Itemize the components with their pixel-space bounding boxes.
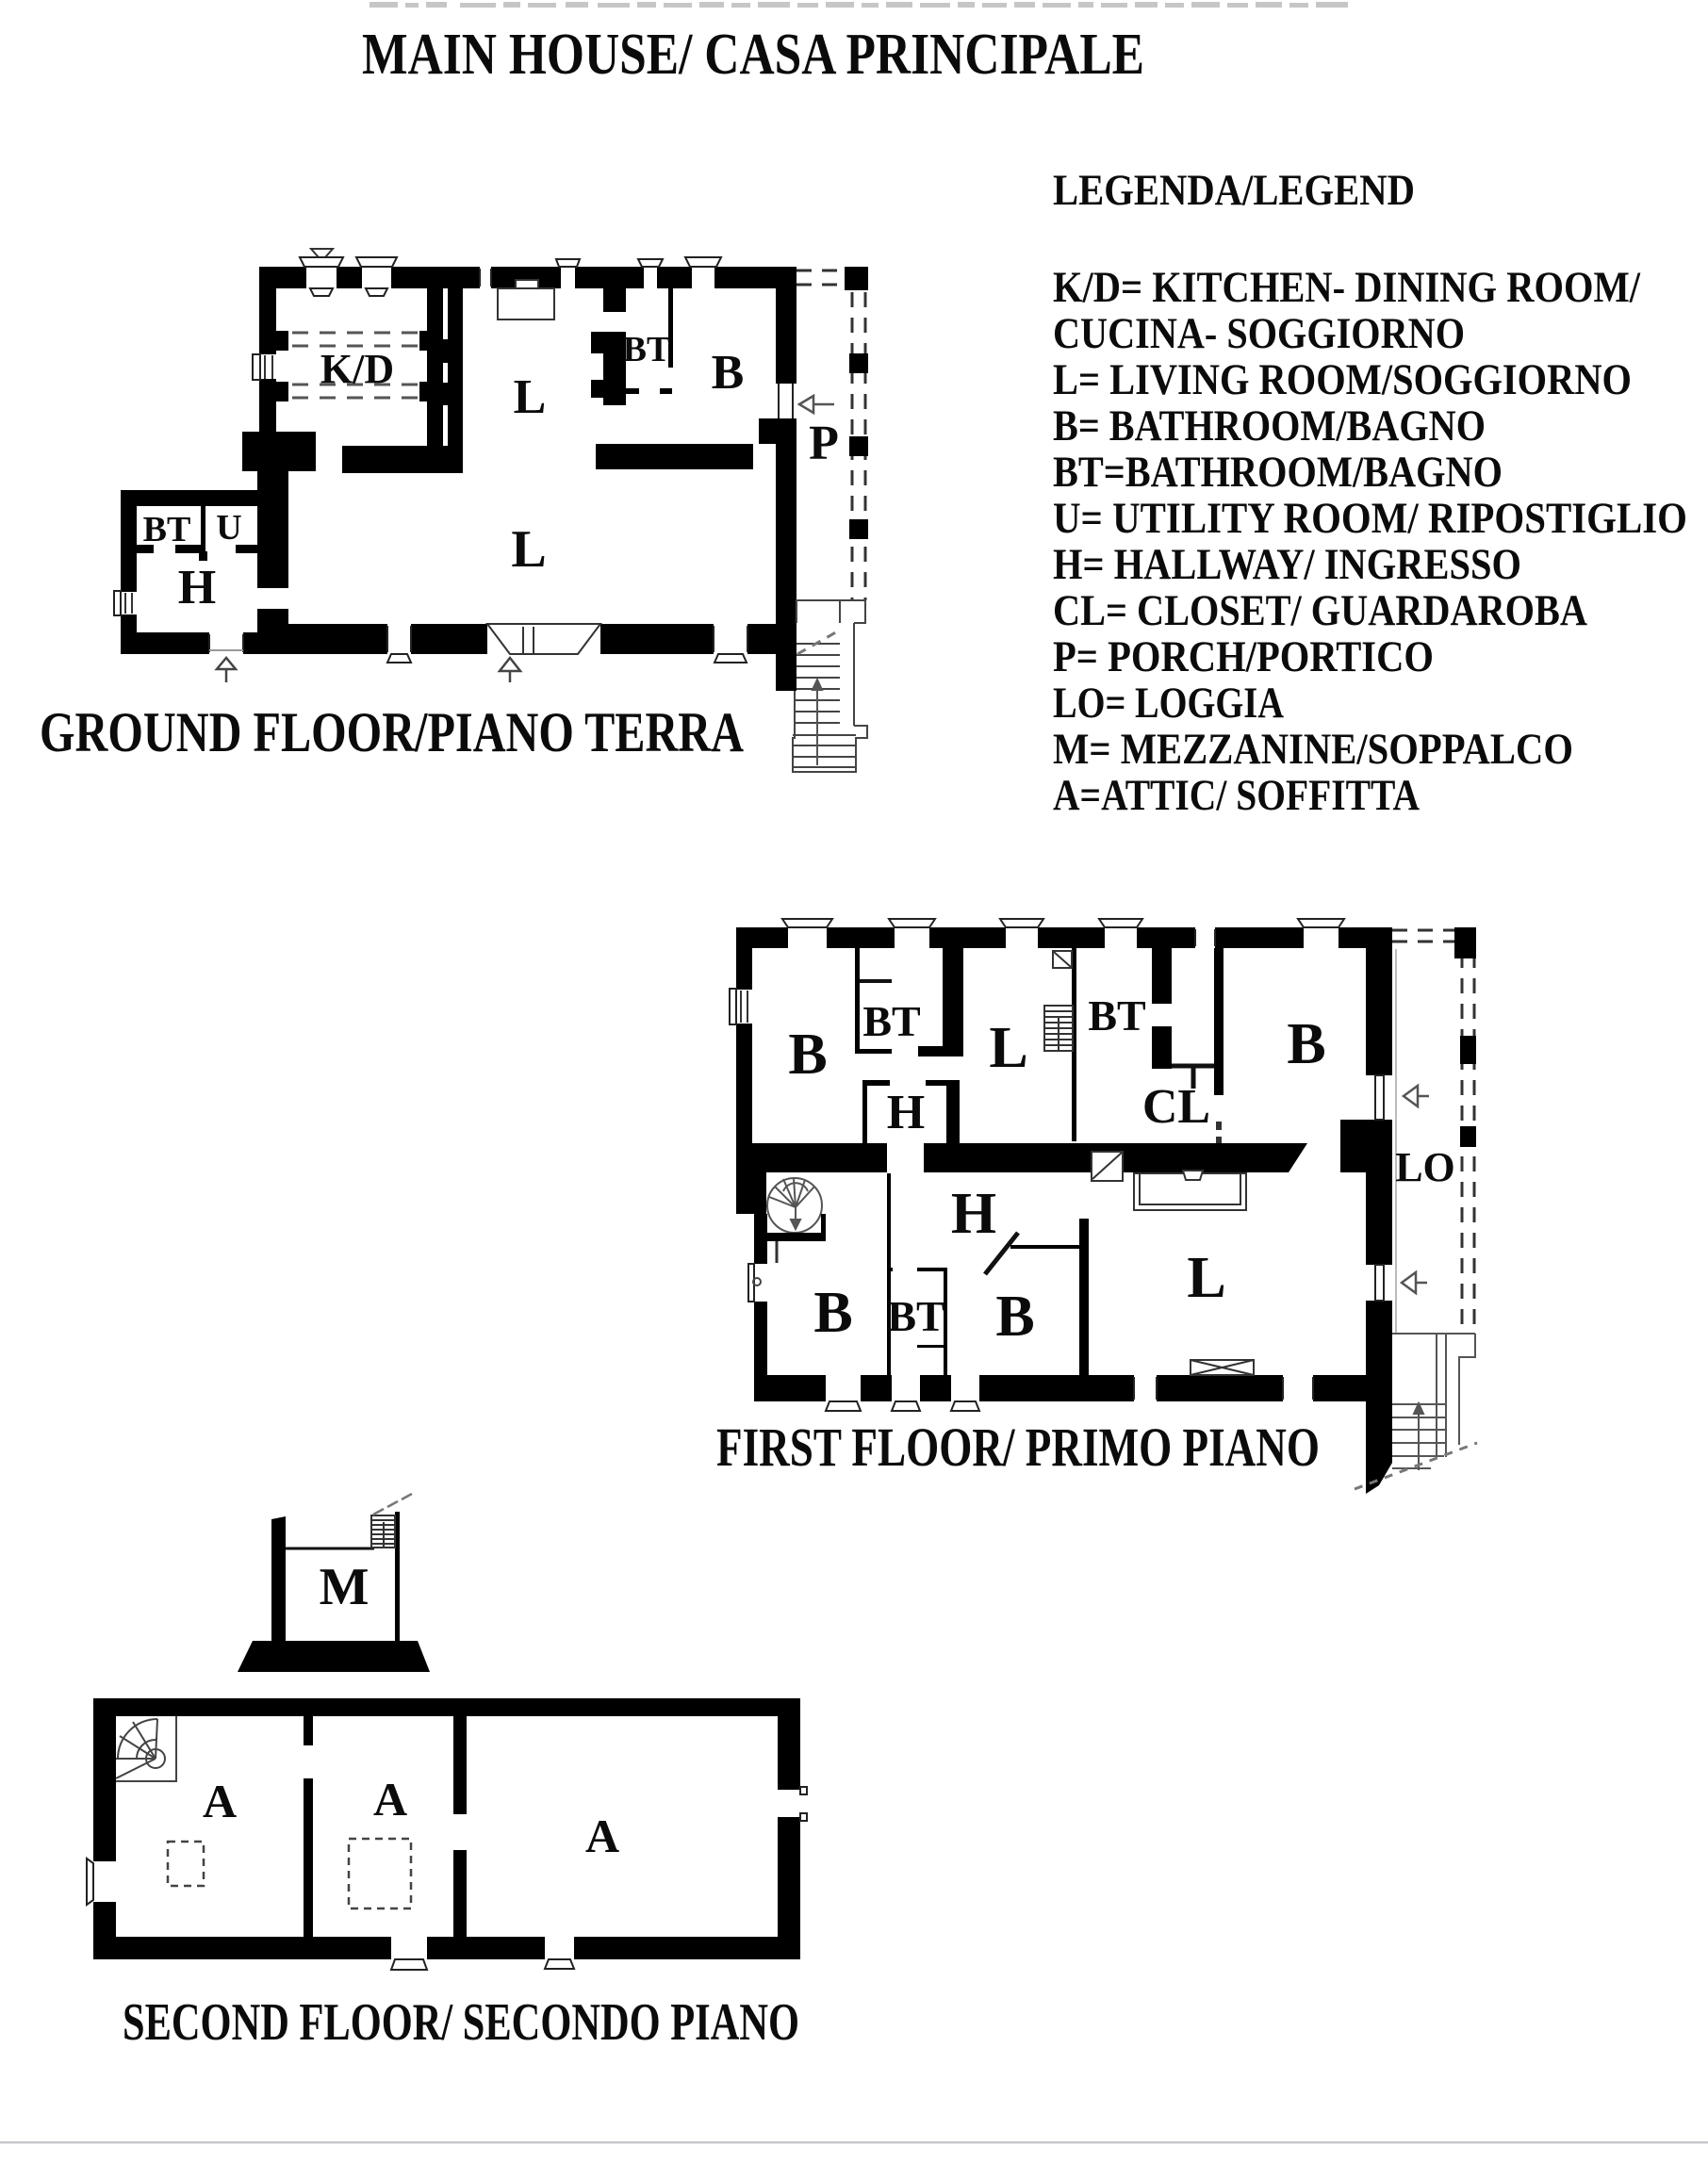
svg-text:CL: CL — [1142, 1080, 1210, 1134]
svg-text:M= MEZZANINE/SOPPALCO: M= MEZZANINE/SOPPALCO — [1053, 725, 1573, 774]
svg-text:BT: BT — [143, 510, 191, 549]
svg-text:LO: LO — [1395, 1144, 1455, 1190]
svg-text:LO= LOGGIA: LO= LOGGIA — [1053, 679, 1284, 728]
svg-text:SECOND FLOOR/ SECONDO PIANO: SECOND FLOOR/ SECONDO PIANO — [123, 1993, 799, 2052]
svg-text:M: M — [320, 1558, 370, 1616]
svg-text:CL= CLOSET/ GUARDAROBA: CL= CLOSET/ GUARDAROBA — [1053, 586, 1587, 635]
svg-text:L: L — [511, 520, 546, 579]
svg-text:B: B — [813, 1281, 852, 1345]
svg-text:L: L — [989, 1016, 1027, 1080]
svg-text:GROUND FLOOR/PIANO TERRA: GROUND FLOOR/PIANO TERRA — [40, 701, 744, 763]
svg-text:B: B — [788, 1023, 827, 1087]
svg-text:H: H — [178, 561, 216, 614]
svg-text:H: H — [951, 1182, 996, 1246]
svg-text:U: U — [216, 508, 241, 548]
svg-text:B= BATHROOM/BAGNO: B= BATHROOM/BAGNO — [1053, 401, 1486, 450]
svg-text:B: B — [712, 346, 745, 400]
svg-text:A=ATTIC/ SOFFITTA: A=ATTIC/ SOFFITTA — [1053, 771, 1420, 820]
svg-text:A: A — [203, 1775, 237, 1827]
svg-text:FIRST FLOOR/ PRIMO PIANO: FIRST FLOOR/ PRIMO PIANO — [716, 1417, 1320, 1478]
svg-text:U= UTILITY ROOM/ RIPOSTIGLIO: U= UTILITY ROOM/ RIPOSTIGLIO — [1053, 494, 1687, 543]
svg-text:MAIN HOUSE/ CASA PRINCIPALE: MAIN HOUSE/ CASA PRINCIPALE — [362, 23, 1144, 87]
svg-text:P= PORCH/PORTICO: P= PORCH/PORTICO — [1053, 632, 1434, 681]
svg-text:BT: BT — [887, 1292, 944, 1340]
svg-text:K/D= KITCHEN- DINING ROOM/: K/D= KITCHEN- DINING ROOM/ — [1053, 263, 1641, 312]
svg-text:LEGENDA/LEGEND: LEGENDA/LEGEND — [1053, 166, 1415, 215]
svg-text:BT: BT — [623, 330, 671, 369]
svg-text:BT: BT — [862, 997, 920, 1045]
svg-text:K/D: K/D — [320, 346, 394, 392]
svg-text:B: B — [995, 1285, 1034, 1349]
svg-text:A: A — [373, 1773, 407, 1826]
svg-text:BT=BATHROOM/BAGNO: BT=BATHROOM/BAGNO — [1053, 448, 1503, 497]
svg-text:B: B — [1287, 1012, 1325, 1076]
svg-text:CUCINA- SOGGIORNO: CUCINA- SOGGIORNO — [1053, 309, 1465, 358]
svg-text:L: L — [1187, 1246, 1225, 1310]
svg-text:P: P — [809, 417, 839, 470]
svg-text:A: A — [585, 1810, 619, 1862]
svg-text:L: L — [514, 370, 547, 424]
svg-text:L= LIVING ROOM/SOGGIORNO: L= LIVING ROOM/SOGGIORNO — [1053, 355, 1632, 404]
svg-text:H= HALLWAY/ INGRESSO: H= HALLWAY/ INGRESSO — [1053, 540, 1521, 589]
svg-text:H: H — [887, 1086, 925, 1139]
svg-text:BT: BT — [1088, 991, 1145, 1040]
